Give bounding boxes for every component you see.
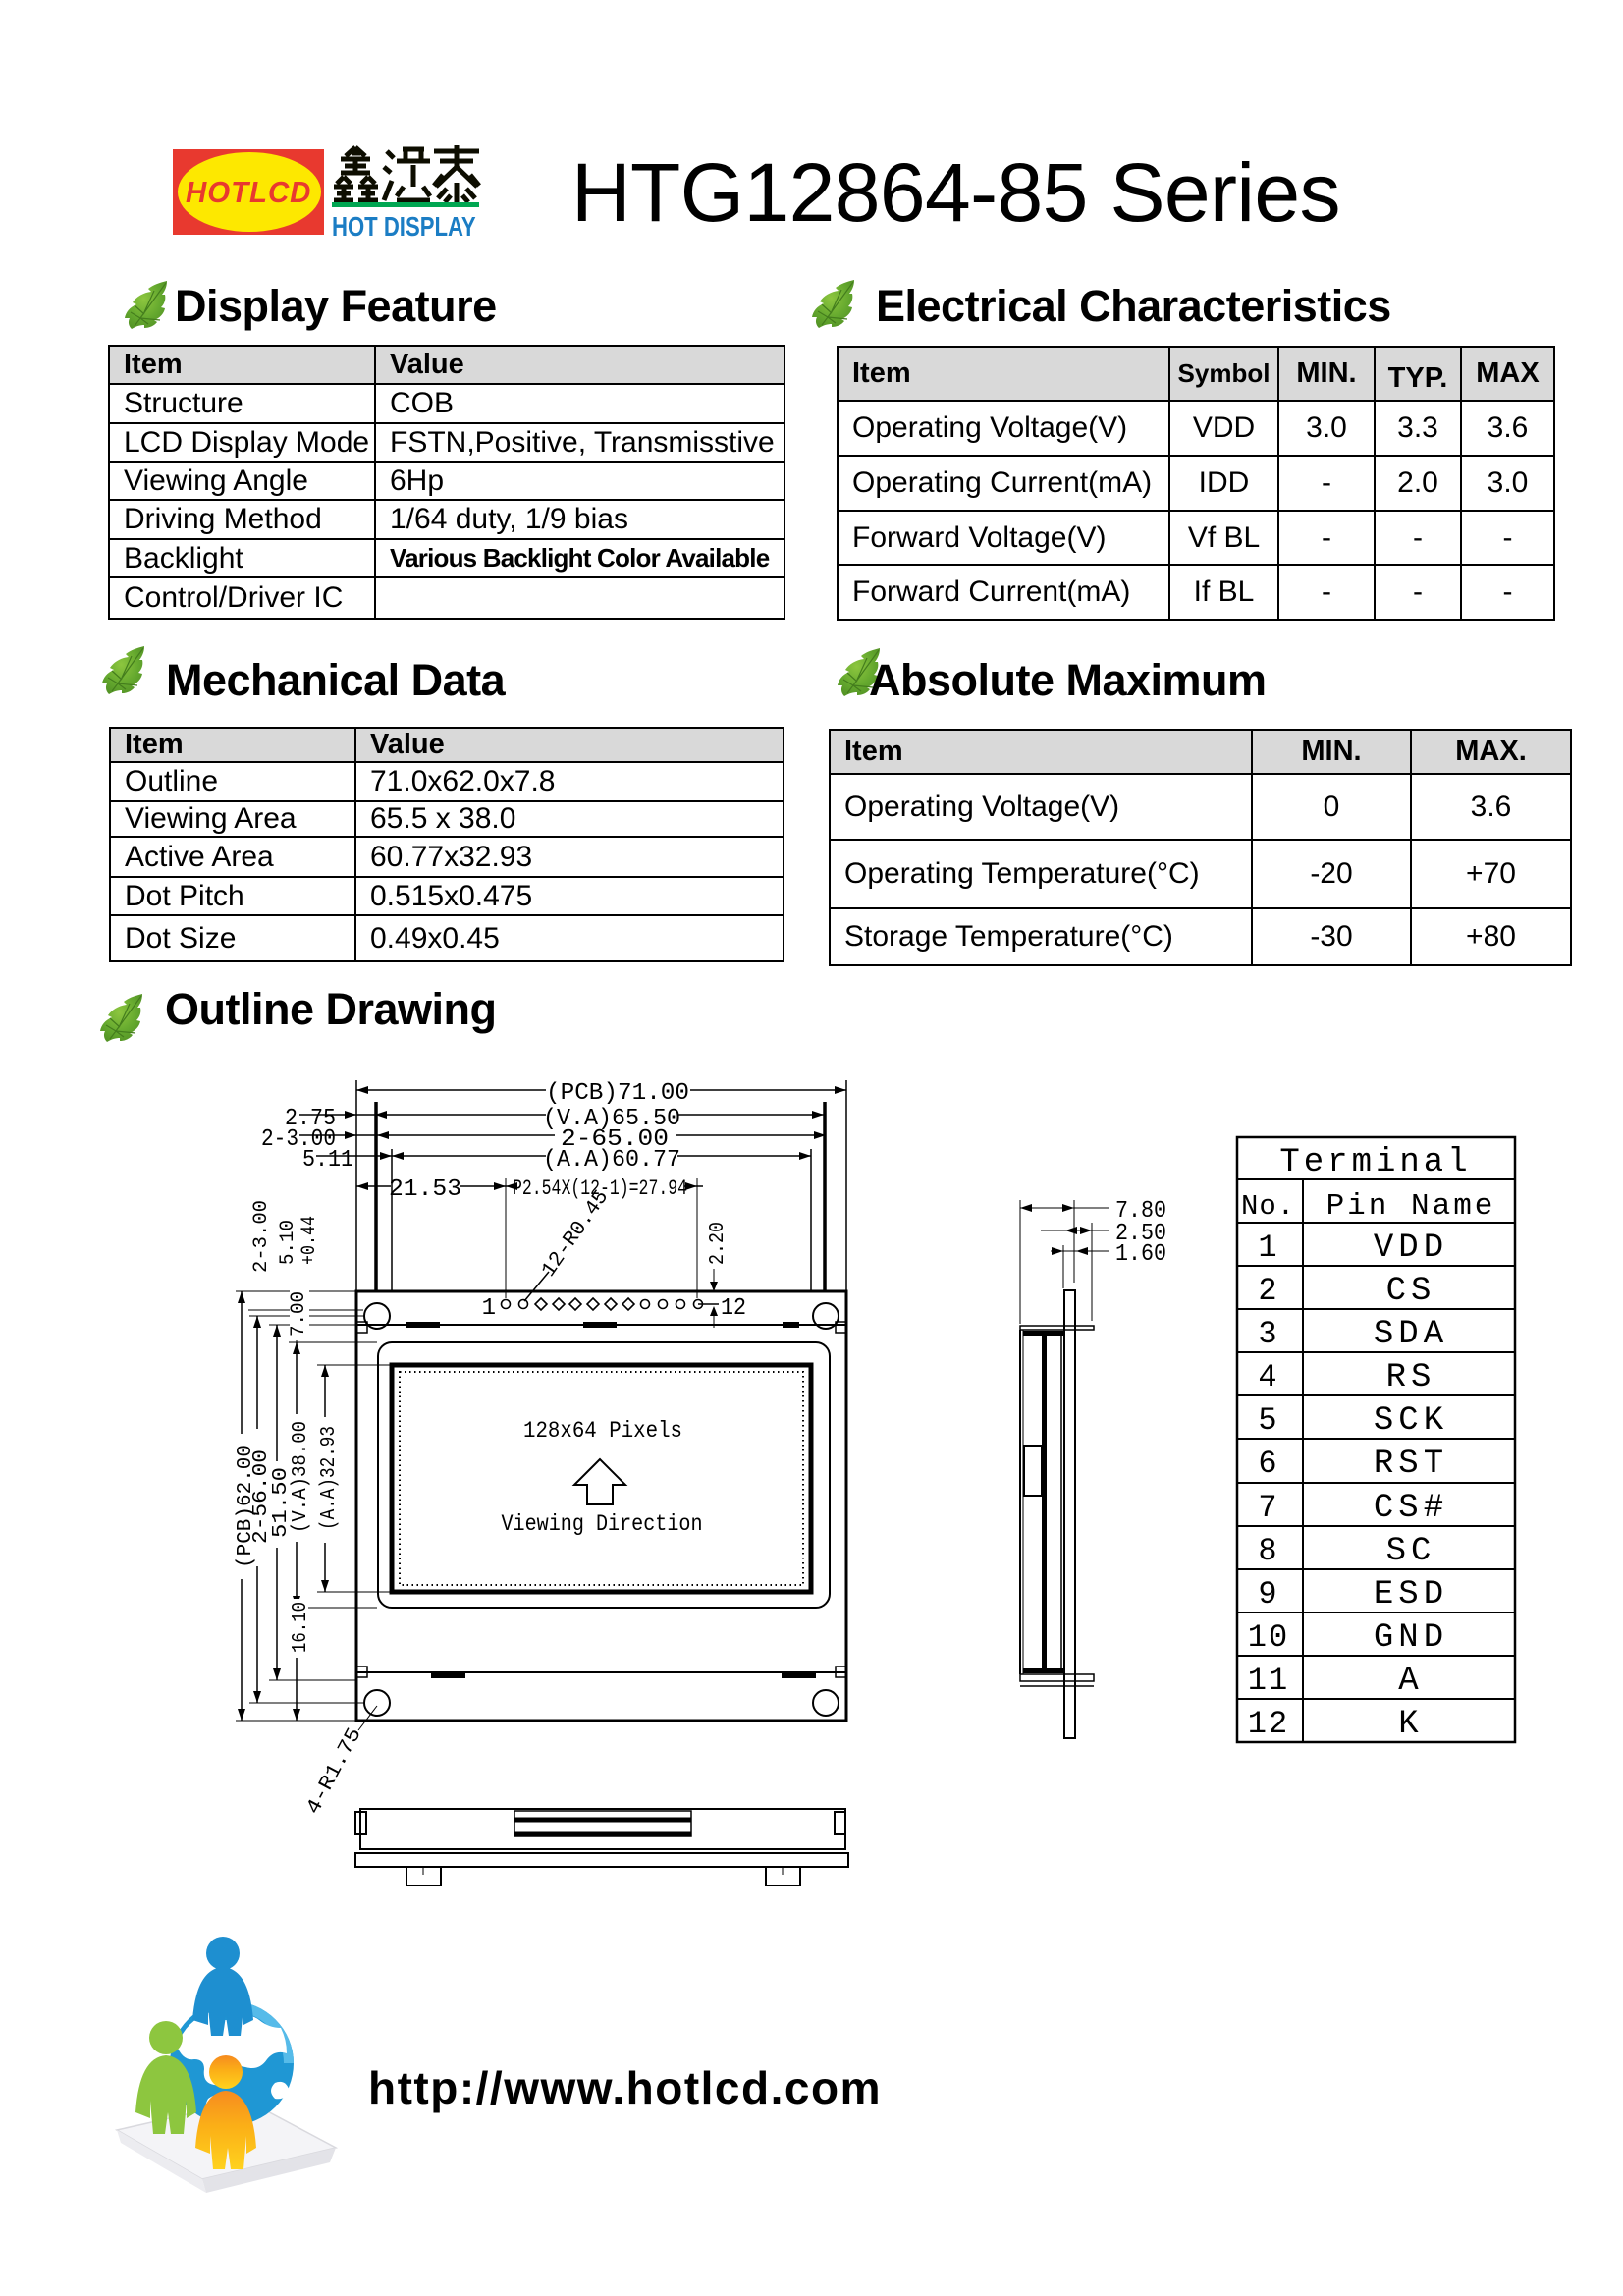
svg-text:8: 8 (1258, 1533, 1278, 1569)
svg-text:6: 6 (1258, 1446, 1278, 1482)
svg-text:5: 5 (1258, 1402, 1278, 1439)
svg-text:2: 2 (1258, 1273, 1278, 1309)
svg-text:No.: No. (1241, 1190, 1295, 1223)
svg-text:Pin Name: Pin Name (1326, 1189, 1496, 1224)
svg-text:SC: SC (1386, 1533, 1436, 1570)
svg-text:(A.A)60.77: (A.A)60.77 (543, 1147, 680, 1174)
svg-text:2.20: 2.20 (707, 1222, 730, 1265)
svg-text:16.10: 16.10 (290, 1602, 312, 1653)
svg-text:CS#: CS# (1374, 1490, 1448, 1527)
svg-text:11: 11 (1248, 1663, 1289, 1699)
svg-text:Terminal: Terminal (1279, 1144, 1471, 1181)
svg-text:+0.44: +0.44 (298, 1216, 321, 1265)
svg-text:1: 1 (1258, 1230, 1278, 1266)
svg-text:21.53: 21.53 (389, 1176, 461, 1203)
svg-text:SDA: SDA (1374, 1316, 1448, 1353)
svg-text:4-R1.75: 4-R1.75 (302, 1724, 366, 1819)
svg-text:RST: RST (1374, 1446, 1448, 1483)
svg-text:128x64 Pixels: 128x64 Pixels (523, 1418, 682, 1444)
svg-text:P2.54X(12-1)=27.94: P2.54X(12-1)=27.94 (513, 1176, 687, 1201)
svg-text:1.60: 1.60 (1115, 1241, 1166, 1268)
svg-text:4: 4 (1258, 1359, 1278, 1395)
svg-text:3: 3 (1258, 1316, 1278, 1352)
svg-text:SCK: SCK (1374, 1402, 1448, 1440)
svg-text:VDD: VDD (1374, 1230, 1448, 1267)
svg-text:GND: GND (1374, 1619, 1448, 1657)
svg-text:A: A (1398, 1663, 1423, 1700)
svg-text:RS: RS (1386, 1359, 1436, 1396)
svg-text:(PCB)71.00: (PCB)71.00 (546, 1080, 689, 1107)
svg-text:5.10: 5.10 (277, 1220, 299, 1265)
svg-text:7: 7 (1258, 1490, 1278, 1526)
svg-text:7.00: 7.00 (288, 1291, 310, 1337)
svg-text:2-3.00: 2-3.00 (250, 1200, 273, 1273)
svg-text:K: K (1398, 1706, 1423, 1743)
svg-text:1: 1 (482, 1295, 496, 1322)
svg-text:5.11: 5.11 (302, 1147, 353, 1174)
svg-text:9: 9 (1258, 1576, 1278, 1613)
svg-text:ESD: ESD (1374, 1576, 1448, 1613)
svg-text:Viewing Direction: Viewing Direction (502, 1511, 703, 1537)
svg-text:10: 10 (1248, 1619, 1289, 1656)
svg-text:(V.A)38.00: (V.A)38.00 (290, 1421, 312, 1533)
svg-text:CS: CS (1386, 1273, 1436, 1310)
svg-text:12: 12 (1248, 1706, 1289, 1742)
svg-text:(A.A)32.93: (A.A)32.93 (318, 1426, 341, 1530)
svg-text:12: 12 (721, 1295, 746, 1322)
